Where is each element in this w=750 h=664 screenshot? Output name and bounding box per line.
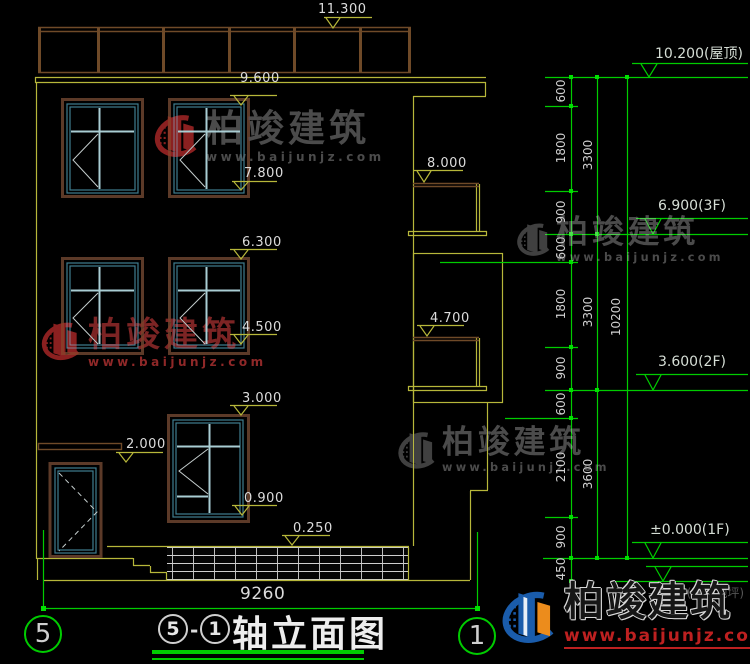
title-circle-1: 1 — [200, 614, 230, 644]
marker-label-0250: 0.250 — [293, 521, 333, 536]
title-circle-1-number: 1 — [208, 618, 221, 640]
dim-3300-b: 3300 — [580, 292, 596, 332]
title-separator: - — [190, 618, 199, 642]
level-label-1f: ±0.000(1F) — [650, 522, 730, 538]
dim-10200: 10200 — [608, 297, 624, 337]
cad-linework — [0, 0, 750, 664]
axis-bubble-5-number: 5 — [35, 619, 52, 649]
dim-600-a: 600 — [553, 71, 569, 111]
footer-logo-icon — [488, 582, 564, 660]
title-circle-5: 5 — [158, 614, 188, 644]
marker-label-7800: 7.800 — [244, 166, 284, 181]
marker-label-4500: 4.500 — [242, 320, 282, 335]
dim-600-c: 600 — [553, 384, 569, 424]
title-circle-5-number: 5 — [166, 618, 179, 640]
marker-label-9600: 9.600 — [240, 71, 280, 86]
marker-label-2000: 2.000 — [126, 437, 166, 452]
footer-brand-name: 柏竣建筑 — [564, 582, 750, 622]
marker-label-8000: 8.000 — [427, 156, 467, 171]
title-underline-thin — [152, 658, 364, 660]
marker-label-3000: 3.000 — [242, 391, 282, 406]
dim-3600: 3600 — [580, 454, 596, 494]
level-label-3f: 6.900(3F) — [658, 198, 726, 214]
green-dimension-lines — [43, 64, 748, 609]
dim-900-a: 900 — [553, 192, 569, 232]
dim-2100: 2100 — [553, 447, 569, 487]
dim-1800-b: 1800 — [553, 284, 569, 324]
title-underline-thick — [152, 650, 364, 654]
dim-3300-a: 3300 — [580, 135, 596, 175]
marker-label-4700: 4.700 — [430, 311, 470, 326]
level-label-2f: 3.600(2F) — [658, 354, 726, 370]
dim-900-b: 900 — [553, 348, 569, 388]
marker-label-0900: 0.900 — [244, 491, 284, 506]
roof-railing — [38, 27, 411, 73]
level-label-roof: 10.200(屋顶) — [655, 43, 743, 63]
footer-brand-logo: 柏竣建筑 www.baijunjz.com — [488, 582, 750, 660]
porch-mask — [37, 558, 133, 580]
bottom-dimension: 9260 — [240, 584, 285, 604]
dim-1800-a: 1800 — [553, 128, 569, 168]
elevation-drawing-canvas: 11.300 9.600 7.800 8.000 6.300 4.500 4.7… — [0, 0, 750, 664]
footer-brand-url: www.baijunjz.com — [564, 626, 750, 649]
dim-600-b: 600 — [553, 228, 569, 268]
axis-bubble-5: 5 — [24, 615, 62, 653]
door-swing-symbol — [59, 473, 97, 551]
marker-label-6300: 6.300 — [242, 235, 282, 250]
marker-label-11300: 11.300 — [318, 2, 367, 17]
axis-bubble-1-number: 1 — [469, 621, 486, 651]
dimension-ticks — [41, 75, 629, 611]
